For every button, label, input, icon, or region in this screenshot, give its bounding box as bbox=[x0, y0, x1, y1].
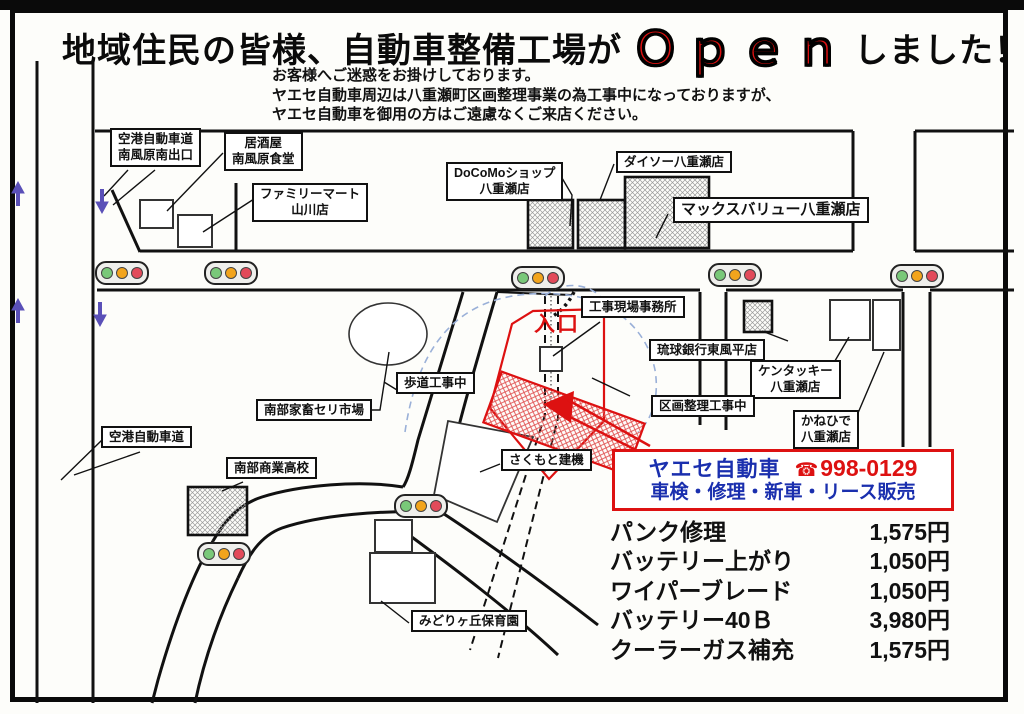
label-midorigaoka: みどりヶ丘保育園 bbox=[411, 610, 527, 632]
phone-icon: ☎ bbox=[795, 460, 819, 481]
label-kanehide: かねひで 八重瀬店 bbox=[793, 410, 859, 449]
traffic-light-icon bbox=[95, 261, 149, 285]
label-izakaya: 居酒屋 南風原食堂 bbox=[224, 132, 303, 171]
price-row: クーラーガス補充1,575円 bbox=[610, 636, 950, 665]
entrance-label: 入口 bbox=[534, 308, 580, 338]
title-prefix: 地域住民の皆様、自動車整備工場が bbox=[62, 23, 622, 72]
notice-text: お客様へご迷惑をお掛けしております。 ヤエセ自動車周辺は八重瀬町区画整理事業の為… bbox=[272, 66, 781, 125]
shop-info-box: ヤエセ自動車 ☎998-0129 車検・修理・新車・リース販売 bbox=[612, 449, 954, 511]
label-commercial-high-school: 南部商業高校 bbox=[226, 457, 317, 479]
label-kfc: ケンタッキー 八重瀬店 bbox=[750, 360, 841, 399]
label-airport-exit: 空港自動車道 南風原南出口 bbox=[110, 128, 201, 167]
notice-line-2: ヤエセ自動車周辺は八重瀬町区画整理事業の為工事中になっておりますが、 bbox=[272, 86, 781, 106]
flyer-page: 地域住民の皆様、自動車整備工場が Ｏｐｅｎ しました！ お客様へご迷惑をお掛けし… bbox=[0, 0, 1024, 714]
price-row: ワイパーブレード1,050円 bbox=[610, 577, 950, 606]
label-familymart: ファミリーマート 山川店 bbox=[252, 183, 368, 222]
traffic-light-icon bbox=[394, 494, 448, 518]
label-sidewalk-construction: 歩道工事中 bbox=[396, 372, 475, 394]
title-suffix: しました！ bbox=[854, 23, 1024, 72]
shop-name: ヤエセ自動車 bbox=[649, 458, 781, 482]
notice-line-1: お客様へご迷惑をお掛けしております。 bbox=[272, 66, 781, 86]
traffic-light-icon bbox=[511, 266, 565, 290]
notice-line-3: ヤエセ自動車を御用の方はご遠慮なくご来店ください。 bbox=[272, 105, 781, 125]
label-land-readjustment: 区画整理工事中 bbox=[651, 395, 755, 417]
shop-phone: ☎998-0129 bbox=[795, 456, 918, 482]
traffic-light-icon bbox=[890, 264, 944, 288]
price-row: パンク修理1,575円 bbox=[610, 518, 950, 547]
price-row: バッテリー上がり1,050円 bbox=[610, 547, 950, 576]
label-daiso: ダイソー八重瀬店 bbox=[616, 151, 732, 173]
price-list: パンク修理1,575円 バッテリー上がり1,050円 ワイパーブレード1,050… bbox=[610, 518, 950, 665]
label-sakumoto: さくもと建機 bbox=[501, 449, 592, 471]
label-ryukyu-bank: 琉球銀行東風平店 bbox=[649, 339, 765, 361]
label-docomo: DoCoMoショップ 八重瀬店 bbox=[446, 162, 563, 201]
label-cattle-market: 南部家畜セリ市場 bbox=[256, 399, 372, 421]
price-row: バッテリー40Ｂ3,980円 bbox=[610, 606, 950, 635]
traffic-light-icon bbox=[204, 261, 258, 285]
traffic-light-icon bbox=[197, 542, 251, 566]
traffic-light-icon bbox=[708, 263, 762, 287]
label-site-office: 工事現場事務所 bbox=[581, 296, 685, 318]
label-maxvalu: マックスバリュー八重瀬店 bbox=[673, 197, 869, 223]
label-airport-expressway: 空港自動車道 bbox=[101, 426, 192, 448]
shop-services: 車検・修理・新車・リース販売 bbox=[650, 482, 915, 503]
